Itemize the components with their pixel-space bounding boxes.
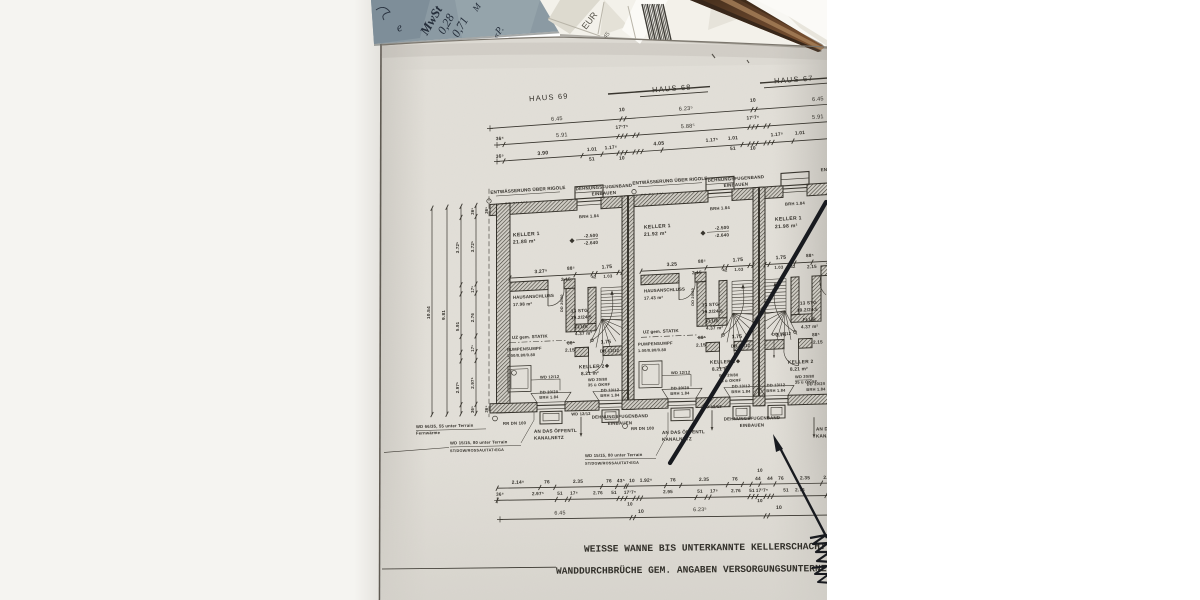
svg-text:76: 76 [544,479,550,485]
svg-text:KANALNETZ: KANALNETZ [534,435,564,441]
svg-text:17¹7⁵: 17¹7⁵ [756,488,768,493]
svg-text:4.37 m²: 4.37 m² [706,325,724,331]
svg-text:10: 10 [619,155,625,161]
svg-text:BRH 1.84: BRH 1.84 [600,392,620,398]
svg-text:4.37 m²: 4.37 m² [801,324,819,330]
svg-text:88⁵: 88⁵ [698,258,706,263]
svg-text:2.15: 2.15 [561,277,571,283]
svg-text:1.17⁵: 1.17⁵ [770,131,783,138]
svg-text:BRH 1.84: BRH 1.84 [731,389,751,395]
svg-text:1.03: 1.03 [603,273,613,278]
svg-text:19.2/24.5: 19.2/24.5 [571,314,592,320]
svg-text:6.45: 6.45 [812,96,824,103]
svg-text:17⁵: 17⁵ [470,286,475,293]
svg-text:17¹7⁵: 17¹7⁵ [615,124,628,131]
svg-text:76: 76 [732,476,738,482]
svg-text:2.35: 2.35 [573,479,583,485]
svg-text:1.75: 1.75 [732,334,743,340]
svg-text:2.95: 2.95 [663,489,673,494]
svg-text:FLUR: FLUR [575,324,589,330]
svg-text:DD 20/80: DD 20/80 [691,288,695,306]
svg-text:5.88⁵: 5.88⁵ [681,122,696,130]
svg-text:10: 10 [619,107,625,113]
svg-text:42: 42 [722,267,728,272]
svg-text:6.23⁵: 6.23⁵ [693,507,707,513]
svg-text:6.23⁵: 6.23⁵ [679,105,694,113]
svg-text:-2.500: -2.500 [584,233,599,239]
svg-text:2.76: 2.76 [470,313,475,323]
svg-text:DD 12/12: DD 12/12 [772,331,792,337]
svg-text:76: 76 [778,476,784,482]
svg-text:10: 10 [638,509,644,515]
svg-text:2.76: 2.76 [731,488,741,493]
svg-text:17⁵: 17⁵ [470,345,475,352]
svg-text:3.90: 3.90 [537,150,548,157]
svg-text:2.97⁵: 2.97⁵ [470,377,475,389]
svg-text:-2.500: -2.500 [715,225,730,231]
svg-text:5.91: 5.91 [455,321,460,331]
svg-text:51: 51 [589,156,595,162]
svg-text:13 STG: 13 STG [702,302,719,308]
svg-text:17⁵: 17⁵ [570,491,578,496]
svg-text:EN: EN [820,167,827,172]
svg-text:BRH 1.84: BRH 1.84 [806,386,826,392]
svg-text:88⁵: 88⁵ [567,265,575,270]
svg-text:1.01: 1.01 [587,146,598,153]
svg-text:5.91: 5.91 [556,132,568,139]
svg-text:17.98 m²: 17.98 m² [513,301,533,307]
svg-text:1.92⁵: 1.92⁵ [640,478,653,484]
svg-text:2.35: 2.35 [800,475,810,481]
svg-text:43⁵: 43⁵ [617,478,625,484]
svg-text:DD 13/12: DD 13/12 [600,348,620,354]
svg-text:1.01: 1.01 [728,135,739,142]
svg-text:10.54: 10.54 [426,306,432,319]
svg-text:Fernwärme: Fernwärme [416,430,441,436]
svg-text:36⁵: 36⁵ [496,492,504,497]
svg-text:17.43 m²: 17.43 m² [644,295,664,301]
svg-text:36⁵: 36⁵ [484,405,489,412]
svg-text:-2.640: -2.640 [715,232,730,238]
svg-text:-2.640: -2.640 [584,240,599,246]
svg-text:BRH 1.84: BRH 1.84 [670,390,690,396]
svg-text:FLUR: FLUR [803,317,817,323]
svg-text:1.01: 1.01 [795,130,806,137]
svg-text:10: 10 [750,98,756,104]
svg-text:WD 12/12: WD 12/12 [540,374,560,380]
svg-text:36⁵: 36⁵ [470,406,475,413]
svg-text:4.05: 4.05 [653,141,664,148]
svg-text:DD 20/80: DD 20/80 [560,294,564,312]
svg-text:51: 51 [783,487,789,492]
svg-text:2.15: 2.15 [807,264,817,270]
svg-text:36⁵: 36⁵ [496,153,505,160]
svg-text:19.2/24.5: 19.2/24.5 [702,308,723,314]
svg-text:RR DN 100: RR DN 100 [503,420,527,426]
svg-text:42: 42 [591,274,597,279]
svg-text:76: 76 [606,478,612,484]
svg-text:3.72⁵: 3.72⁵ [470,241,475,253]
svg-text:10: 10 [627,501,633,506]
svg-text:17¹7⁵: 17¹7⁵ [624,490,636,495]
svg-text:13 STG: 13 STG [800,300,817,306]
svg-text:51: 51 [611,490,617,495]
svg-text:5.91: 5.91 [812,114,824,121]
svg-text:51: 51 [730,146,736,152]
svg-text:1.75: 1.75 [776,255,787,262]
svg-text:FLUR: FLUR [706,318,720,324]
svg-text:4.37 m²: 4.37 m² [575,331,593,337]
svg-text:13 STG: 13 STG [571,308,588,314]
svg-text:1.75: 1.75 [602,264,613,271]
svg-text:1.03: 1.03 [774,264,784,269]
svg-text:2.15: 2.15 [696,342,706,347]
svg-text:88⁵: 88⁵ [812,332,820,337]
svg-text:10: 10 [757,498,763,503]
svg-text:19.2/24.5: 19.2/24.5 [797,307,818,313]
svg-text:6.45: 6.45 [551,116,563,123]
svg-text:WD 12/12: WD 12/12 [571,411,591,417]
svg-text:EINBAUEN: EINBAUEN [608,420,633,426]
svg-text:2.35: 2.35 [699,477,709,483]
svg-text:2.97⁵: 2.97⁵ [455,382,460,394]
svg-text:AN DAS ÖFFENTL: AN DAS ÖFFENTL [662,428,705,435]
svg-text:1.03: 1.03 [734,267,744,272]
svg-text:51: 51 [557,491,563,496]
svg-text:36⁵: 36⁵ [484,207,489,214]
svg-text:76: 76 [670,477,676,483]
svg-text:88⁵: 88⁵ [806,253,814,258]
svg-text:WD 12/12: WD 12/12 [671,370,691,376]
svg-text:17⁵: 17⁵ [710,488,718,493]
svg-text:10: 10 [757,468,763,473]
svg-text:1.17⁵: 1.17⁵ [604,145,617,152]
svg-text:1.75: 1.75 [733,257,744,264]
svg-text:KELLER 2: KELLER 2 [788,359,814,366]
svg-text:36⁵: 36⁵ [470,207,475,214]
svg-text:3.27⁵: 3.27⁵ [534,269,548,276]
svg-text:1.75: 1.75 [601,339,612,345]
svg-text:51: 51 [749,488,755,493]
svg-text:3.25: 3.25 [667,262,678,269]
svg-text:EINBAUEN: EINBAUEN [740,422,765,428]
svg-text:10: 10 [776,505,782,511]
svg-text:3.72⁵: 3.72⁵ [455,242,460,254]
svg-text:44: 44 [767,476,773,482]
svg-text:44: 44 [755,476,761,482]
svg-text:BRH 1.84: BRH 1.84 [539,394,559,400]
svg-text:2.76: 2.76 [593,490,603,495]
svg-text:RR DN 100: RR DN 100 [631,426,655,432]
svg-text:6.45: 6.45 [554,510,565,516]
svg-text:AN DAS ÖFFENTL: AN DAS ÖFFENTL [534,427,577,434]
svg-text:35 ü OKRF: 35 ü OKRF [588,382,611,388]
svg-text:2.15: 2.15 [692,270,702,276]
svg-text:10: 10 [750,145,756,151]
svg-text:10: 10 [629,478,635,484]
svg-text:2.15: 2.15 [565,347,575,352]
svg-text:8.21 m²: 8.21 m² [790,366,808,373]
svg-text:17¹7⁵: 17¹7⁵ [746,115,759,122]
svg-text:36⁵: 36⁵ [496,136,505,143]
svg-text:2.14⁵: 2.14⁵ [512,480,525,486]
svg-text:2.15: 2.15 [813,339,823,344]
svg-text:1.17⁵: 1.17⁵ [705,137,718,144]
svg-text:2.97⁵: 2.97⁵ [532,491,544,496]
svg-text:51: 51 [697,489,703,494]
svg-text:BRH 1.84: BRH 1.84 [766,388,786,394]
svg-text:KELLER 2: KELLER 2 [579,364,605,371]
svg-text:9.81: 9.81 [441,310,447,320]
